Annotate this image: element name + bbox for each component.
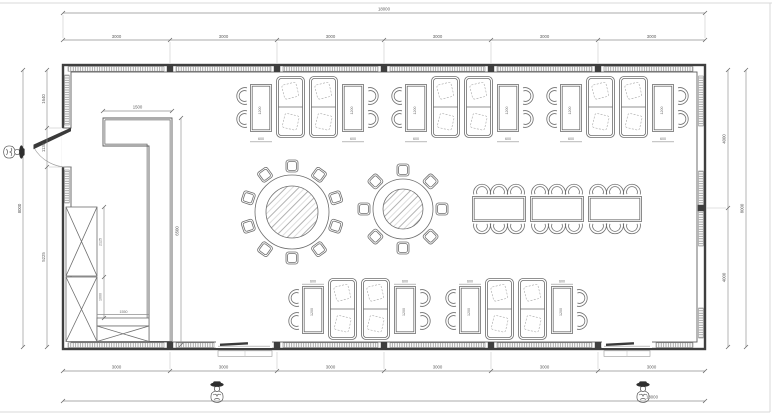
- dim-bottom-bay-1: 3000: [112, 364, 122, 369]
- dim-table: 600: [402, 280, 408, 284]
- dim-bottom-bay-5: 3000: [540, 364, 550, 369]
- dim-table: 600: [350, 137, 356, 141]
- floor-plan-sheet: 18000 3000 3000 3000 3000 3000 3000 3000…: [0, 0, 772, 414]
- dim-table-length: 1200: [467, 308, 471, 316]
- dim-right-total: 8000: [740, 203, 745, 213]
- dim-left-seg-1: 1640: [41, 94, 46, 104]
- dim-table: 600: [310, 280, 316, 284]
- dim-bottom-bay-2: 3000: [219, 364, 229, 369]
- dim-top-bay-4: 3000: [433, 34, 443, 39]
- dim-bottom-total: 18000: [646, 395, 659, 400]
- wardrobe-cabinets: [66, 207, 149, 342]
- round-table-small: [358, 164, 448, 254]
- dim-left-seg-3: 5225: [41, 252, 46, 262]
- dim-top-bay-5: 3000: [540, 34, 550, 39]
- person-figure-left: [4, 145, 25, 158]
- dim-cabinet-upper: 2125: [98, 238, 102, 246]
- dim-table-length: 1200: [568, 107, 572, 115]
- dim-table-length: 1200: [660, 107, 664, 115]
- dim-right-seg-2: 4000: [722, 272, 727, 282]
- dim-table-length: 1200: [350, 107, 354, 115]
- dim-bottom-bay-3: 3000: [326, 364, 336, 369]
- dim-bottom-bay-6: 3000: [647, 364, 657, 369]
- dim-table-length: 1200: [505, 107, 509, 115]
- dim-table-length: 1200: [402, 308, 406, 316]
- dim-counter-width: 1500: [133, 105, 143, 110]
- dim-top-total: 18000: [378, 7, 391, 12]
- round-table-large: [241, 160, 344, 264]
- banquet-table-row: [473, 184, 642, 233]
- dim-table: 600: [413, 137, 419, 141]
- dim-table-length: 1200: [559, 308, 563, 316]
- dim-top-bay-2: 3000: [219, 34, 229, 39]
- floor-plan-drawing: 18000 3000 3000 3000 3000 3000 3000 3000…: [0, 0, 772, 414]
- dim-top-bay-6: 3000: [647, 34, 657, 39]
- dim-top-bay-1: 3000: [112, 34, 122, 39]
- dim-table: 600: [559, 280, 565, 284]
- dim-cabinet-width: 1550: [120, 310, 128, 314]
- dim-top-bay-3: 3000: [326, 34, 336, 39]
- dim-table: 600: [258, 137, 264, 141]
- dim-table: 600: [660, 137, 666, 141]
- dim-cabinet-lower: 1000: [98, 293, 102, 301]
- dim-left-seg-2: 1135: [41, 142, 46, 152]
- dim-table-length: 1200: [310, 308, 314, 316]
- dim-table-length: 1200: [258, 107, 262, 115]
- left-entry-door: [34, 128, 73, 168]
- dim-table: 600: [467, 280, 473, 284]
- dim-counter-height: 6500: [175, 226, 180, 236]
- dim-table: 600: [505, 137, 511, 141]
- dim-left-total: 8000: [17, 203, 22, 213]
- dim-table-length: 1200: [413, 107, 417, 115]
- person-figure-bottom-left: [210, 381, 223, 402]
- dim-right-seg-1: 4000: [722, 134, 727, 144]
- service-counter-wall: [103, 118, 172, 342]
- dim-bottom-bay-4: 3000: [433, 364, 443, 369]
- dim-table: 600: [568, 137, 574, 141]
